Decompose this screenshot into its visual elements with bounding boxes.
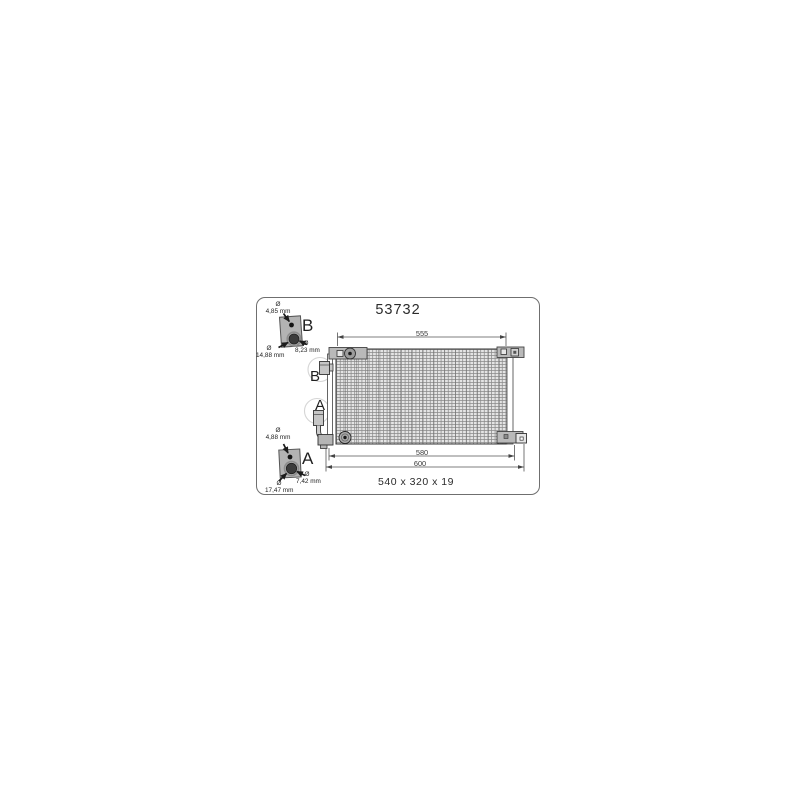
detail-b-top-hole-label: Ø 4,85 mm	[262, 301, 294, 315]
diameter-symbol: Ø	[265, 480, 293, 487]
diameter-value: 4,85 mm	[262, 308, 294, 315]
right-side-tank	[507, 349, 513, 444]
page-canvas: 53732 555 580 600 540 x 320 x 19 B A B A…	[0, 0, 800, 800]
detail-a-top-hole-label: Ø 4,88 mm	[262, 427, 294, 441]
dimension-label-580: 580	[407, 448, 437, 457]
mounting-bracket-top-right	[497, 347, 524, 358]
drawing-frame: 53732 555 580 600 540 x 320 x 19 B A B A…	[256, 297, 540, 495]
diameter-symbol: Ø	[295, 340, 317, 347]
connection-b-letter: B	[310, 368, 320, 385]
diameter-symbol: Ø	[256, 345, 282, 352]
detail-a-letter: A	[302, 449, 313, 469]
mounting-bracket-top-left	[329, 348, 367, 360]
diameter-value: 14,88 mm	[256, 352, 282, 359]
diameter-symbol: Ø	[296, 471, 318, 478]
part-number: 53732	[257, 302, 539, 318]
core-size-label: 540 x 320 x 19	[346, 476, 486, 488]
diameter-symbol: Ø	[262, 301, 294, 308]
diameter-symbol: Ø	[262, 427, 294, 434]
bottom-left-boss	[339, 432, 351, 444]
connection-a-letter: A	[315, 397, 325, 414]
bottom-fitting	[318, 435, 333, 446]
detail-b-outer-hole-label: Ø 14,88 mm	[256, 345, 282, 359]
detail-b-main-hole-label: Ø 8,23 mm	[295, 340, 317, 354]
mounting-bracket-bottom-right	[497, 432, 527, 444]
detail-a-outer-hole-label: Ø 17,47 mm	[265, 480, 293, 494]
condenser-core-fins	[336, 349, 507, 444]
condenser-body	[314, 347, 527, 449]
diameter-value: 7,42 mm	[296, 478, 318, 485]
diameter-value: 17,47 mm	[265, 487, 293, 494]
dimension-label-600: 600	[405, 459, 435, 468]
detail-a-main-hole-label: Ø 7,42 mm	[296, 471, 318, 485]
dimension-label-555: 555	[407, 329, 437, 338]
diameter-value: 4,88 mm	[262, 434, 294, 441]
detail-b-letter: B	[302, 316, 313, 336]
diameter-value: 8,23 mm	[295, 347, 317, 354]
condenser-diagram	[257, 298, 539, 494]
